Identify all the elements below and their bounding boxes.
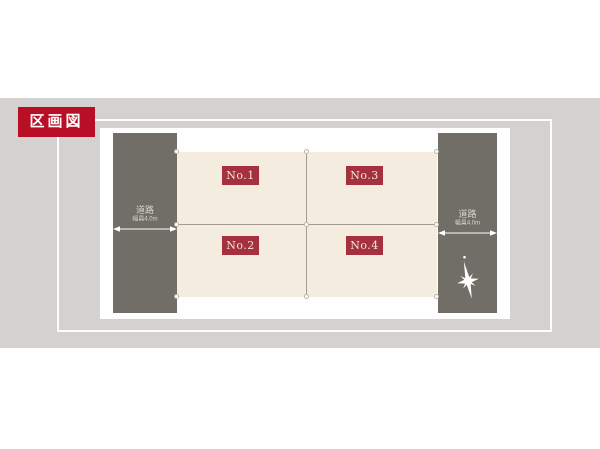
lot-badge-no3: No.3 xyxy=(346,166,383,185)
lot-badge-no2: No.2 xyxy=(222,236,259,255)
survey-point xyxy=(174,294,179,299)
survey-point xyxy=(434,149,439,154)
page-title: 区画図 xyxy=(18,107,95,137)
survey-point xyxy=(304,149,309,154)
compass-star-icon xyxy=(449,255,487,301)
road-label-left: 道路 幅員4.0m xyxy=(113,205,177,224)
lot-map-page: No.1 No.2 No.3 No.4 道路 幅員4.0m 道路 幅員4.0m … xyxy=(0,0,600,449)
dimension-arrow-left xyxy=(113,225,177,233)
road-width-right: 幅員4.0m xyxy=(442,220,492,227)
lot-badge-no1: No.1 xyxy=(222,166,259,185)
survey-point xyxy=(304,222,309,227)
road-name-right: 道路 xyxy=(438,209,497,220)
road-name-left: 道路 xyxy=(113,205,177,216)
lot-badge-no4: No.4 xyxy=(346,236,383,255)
survey-point xyxy=(304,294,309,299)
dimension-arrow-right xyxy=(438,229,497,237)
road-width-left: 幅員4.0m xyxy=(118,216,172,223)
survey-point xyxy=(434,294,439,299)
road-label-right: 道路 幅員4.0m xyxy=(438,209,497,228)
survey-point xyxy=(174,149,179,154)
